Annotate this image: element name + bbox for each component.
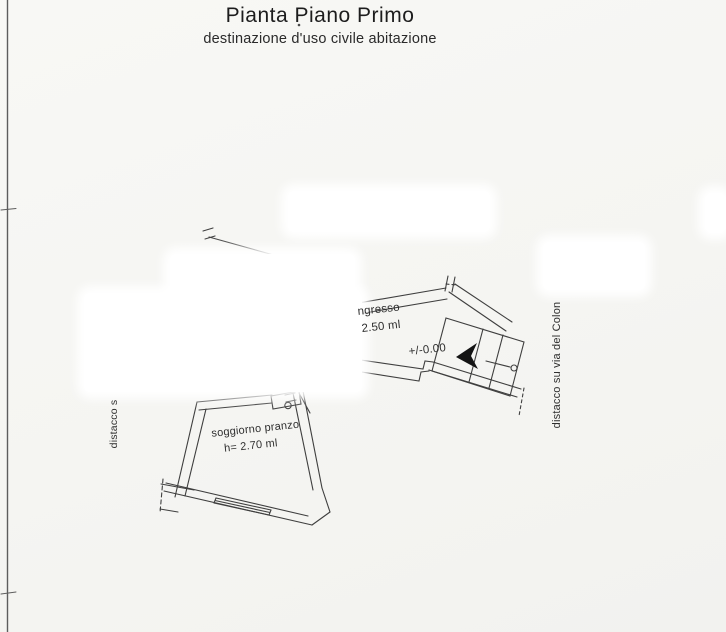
- right-margin-note: distacco su via del Colon: [551, 295, 563, 435]
- entrance-arrow-icon: [456, 343, 478, 369]
- redaction-box: [84, 293, 362, 392]
- staircase: [432, 318, 524, 396]
- page-subtitle: destinazione d'uso civile abitazione: [130, 31, 510, 47]
- upper-left-wall: [203, 228, 277, 256]
- balcony-ledge: [160, 479, 194, 513]
- soggiorno-top-wall: [197, 395, 272, 410]
- corner-window-hatch: [445, 276, 512, 331]
- page-title: Pianta Piano Primo: [160, 4, 480, 28]
- redaction-box: [543, 242, 645, 290]
- page-edge-line: [1, 0, 16, 632]
- left-margin-note: distacco s: [108, 392, 120, 456]
- scanned-floor-plan-page: Pianta Piano Primo destinazione d'uso ci…: [0, 0, 726, 632]
- below-stairs-wall: [429, 362, 524, 416]
- stair-direction-circle: [511, 365, 517, 371]
- redaction-box: [288, 191, 490, 232]
- stair-direction-line: [486, 361, 510, 367]
- redaction-box: [705, 193, 726, 233]
- soggiorno-left-wall: [175, 402, 206, 497]
